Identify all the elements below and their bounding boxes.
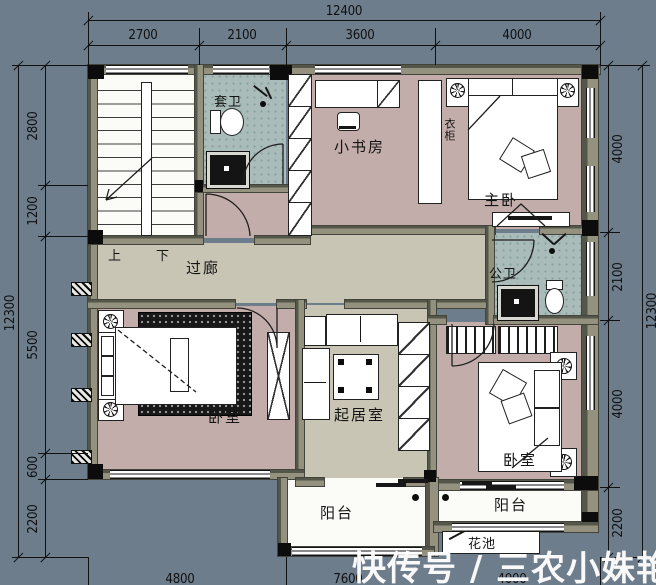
wardrobe-hangers	[498, 326, 558, 354]
dim-ext	[600, 232, 620, 233]
dim-left-seg: 600	[25, 441, 41, 494]
side-table	[304, 316, 326, 346]
room-label-balcony-left: 阳台	[320, 502, 354, 523]
floor-plan-canvas: 套卫 小书房 主卧 过廊 公卫 卧室 起居室 卧室 阳台 阳台 花池 衣柜 上 …	[0, 0, 656, 585]
toilet-bowl	[545, 288, 564, 314]
dim-top-seg: 2100	[216, 27, 269, 43]
dim-left-seg: 2800	[25, 100, 41, 153]
sliding-door-panel	[376, 483, 406, 487]
toilet-bowl	[220, 108, 244, 136]
sliding-door-panel	[486, 485, 516, 489]
column	[582, 220, 598, 236]
dim-ext	[600, 487, 620, 488]
room-label-master-bedroom: 主卧	[484, 189, 518, 210]
pillow	[534, 408, 560, 446]
tv-line	[508, 216, 552, 220]
wall-vestibule-south	[255, 236, 310, 244]
dim-line-left-total	[18, 65, 19, 557]
closet-unit	[288, 74, 312, 107]
closet-unit	[288, 106, 312, 139]
stair-stringer	[141, 82, 152, 236]
pier-hatch	[71, 282, 92, 296]
ceiling-lamp-icon	[560, 83, 575, 98]
master-wardrobe	[418, 80, 442, 204]
column	[195, 180, 203, 192]
sofa-cushion-line	[304, 382, 326, 383]
table-leg	[338, 359, 344, 365]
dim-top-total: 12400	[318, 3, 371, 19]
window-study-top	[315, 65, 401, 74]
dim-left-total: 12300	[2, 287, 18, 340]
study-chair-back	[339, 126, 356, 129]
ceiling-lamp-icon	[450, 83, 465, 98]
bed-bench	[170, 338, 189, 392]
dim-line-right-segments	[608, 65, 609, 557]
pillow	[534, 370, 560, 408]
railing-balconyR	[452, 523, 564, 532]
pillow	[101, 356, 114, 376]
room-label-bedroom-left: 卧室	[208, 406, 242, 427]
wall-exterior-left	[88, 65, 97, 479]
door-handle-dot	[412, 494, 419, 501]
dim-ext	[88, 557, 89, 585]
dim-line-left-segments	[45, 65, 46, 557]
study-drawer-unit	[377, 80, 400, 108]
closet-unit	[288, 170, 312, 203]
room-label-ensuite-bath: 套卫	[214, 91, 242, 110]
stair-down-label: 下	[156, 245, 170, 264]
cabinet-unit	[398, 322, 430, 355]
room-label-corridor: 过廊	[186, 257, 220, 278]
dim-line-top-total	[88, 20, 600, 21]
dim-left-seg: 5500	[25, 319, 41, 372]
column	[88, 464, 103, 479]
wardrobe-label: 衣柜	[441, 118, 457, 142]
window-public-bath-east	[586, 242, 595, 296]
dim-ext	[12, 557, 88, 558]
dim-ext	[12, 65, 88, 66]
shower-head-icon	[260, 101, 266, 107]
wardrobe-hangers	[446, 326, 496, 354]
table-leg	[366, 359, 372, 365]
wall-living-south-1	[296, 478, 324, 486]
room-label-study: 小书房	[334, 136, 385, 157]
wall-corridor-south-3	[345, 300, 486, 308]
tv-cabinet	[267, 332, 290, 420]
dim-right-seg: 4000	[610, 123, 626, 176]
column	[582, 65, 598, 79]
window-master-east-2	[586, 166, 595, 212]
dim-left-seg: 2200	[25, 493, 41, 546]
column	[278, 543, 291, 556]
drain-dot	[514, 299, 519, 304]
window-stair-top	[106, 65, 188, 74]
door-handle-dot	[442, 494, 449, 501]
column	[574, 476, 598, 490]
wall-study-master-south	[310, 226, 495, 234]
window-ensuite-top	[213, 65, 269, 74]
table-leg	[338, 387, 344, 393]
dim-bottom-seg: 4800	[154, 571, 207, 585]
watermark-text: 快传号 / 三农小姝艳	[352, 541, 656, 585]
dim-top-seg: 4000	[491, 27, 544, 43]
wall-bedroomR-north-1	[428, 316, 446, 324]
dim-top-seg: 2700	[117, 27, 170, 43]
drain-dot	[224, 166, 229, 171]
corridor-floor	[96, 243, 488, 303]
shower-tray	[498, 286, 538, 320]
pier-hatch	[71, 333, 92, 347]
column	[582, 512, 598, 522]
room-label-balcony-right: 阳台	[494, 494, 528, 515]
window-bedroomL-south	[110, 470, 270, 479]
cabinet-unit	[398, 386, 430, 419]
dim-right-seg: 4000	[610, 378, 626, 431]
wall-stair-east	[195, 65, 203, 244]
pillow	[101, 376, 114, 396]
window-bedroomR-east	[586, 336, 595, 410]
study-desk	[315, 80, 379, 108]
shower-tray	[207, 152, 249, 188]
balcony-left-floor	[286, 478, 428, 548]
window-master-east-1	[586, 88, 595, 138]
stair-up-label: 上	[108, 245, 122, 264]
pier-hatch	[71, 388, 92, 402]
closet-unit	[288, 138, 312, 171]
room-label-public-bath: 公卫	[489, 263, 517, 282]
dim-ext	[286, 557, 287, 585]
shower-head-icon	[549, 248, 555, 254]
cabinet-unit	[398, 354, 430, 387]
wall-stair-south	[88, 236, 203, 244]
sofa-cushion-line	[360, 316, 361, 342]
dim-right-total: 12300	[644, 285, 656, 338]
pillow	[101, 336, 114, 356]
cabinet-unit	[398, 418, 430, 451]
closet-unit	[288, 202, 312, 236]
sofa-side	[302, 348, 330, 420]
corridor-floor-east	[310, 232, 488, 246]
dim-right-seg: 2100	[610, 251, 626, 304]
dim-line-top-segments	[88, 45, 600, 46]
wall-corridor-south-1	[88, 300, 235, 308]
table-leg	[366, 387, 372, 393]
room-label-living-room: 起居室	[334, 404, 385, 425]
dim-ext	[600, 320, 620, 321]
room-label-bedroom-right: 卧室	[503, 449, 537, 470]
dim-left-seg: 1200	[25, 185, 41, 238]
dim-top-seg: 3600	[334, 27, 387, 43]
sofa-main	[326, 314, 398, 346]
dim-line-right-total	[642, 65, 643, 557]
column	[88, 65, 104, 79]
